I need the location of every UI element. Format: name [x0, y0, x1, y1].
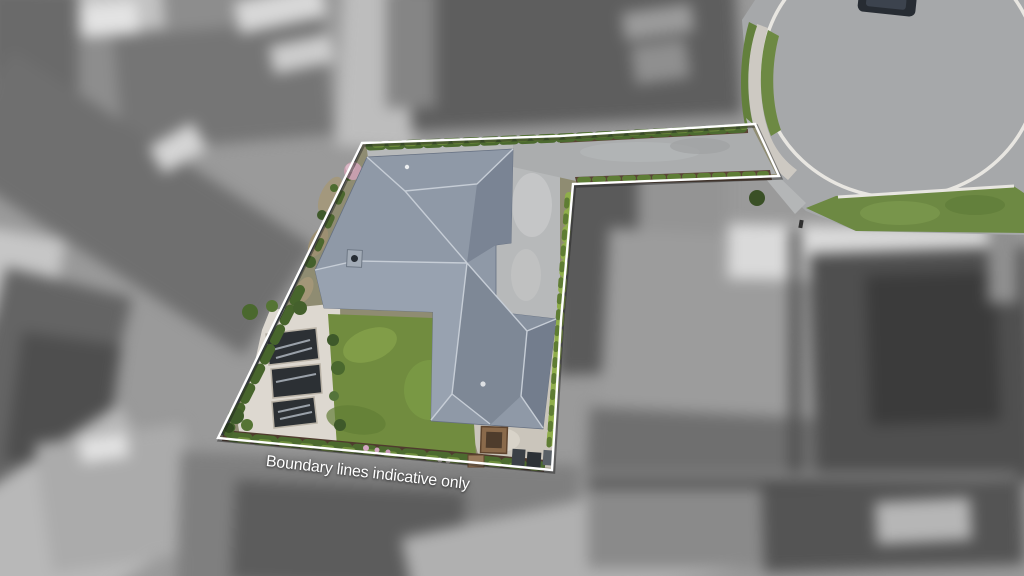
shrub [330, 184, 338, 192]
pink-flowers [363, 445, 369, 451]
strip-mottle [670, 138, 730, 154]
aerial-photo: Boundary lines indicative only [0, 0, 1024, 576]
roof-vent-small [405, 165, 409, 169]
property-scene [0, 0, 1024, 576]
concrete-mottle [511, 249, 541, 301]
cul-de-sac [741, 0, 1024, 235]
property-lot [218, 124, 779, 472]
pink-flowers [375, 448, 380, 453]
grass-texture [945, 195, 1005, 215]
roof-vent-small [480, 381, 485, 386]
bush [749, 190, 765, 206]
roof-vent [347, 250, 363, 268]
grass-texture [860, 201, 940, 225]
concrete-mottle [512, 173, 552, 237]
pedestrian [798, 220, 803, 229]
